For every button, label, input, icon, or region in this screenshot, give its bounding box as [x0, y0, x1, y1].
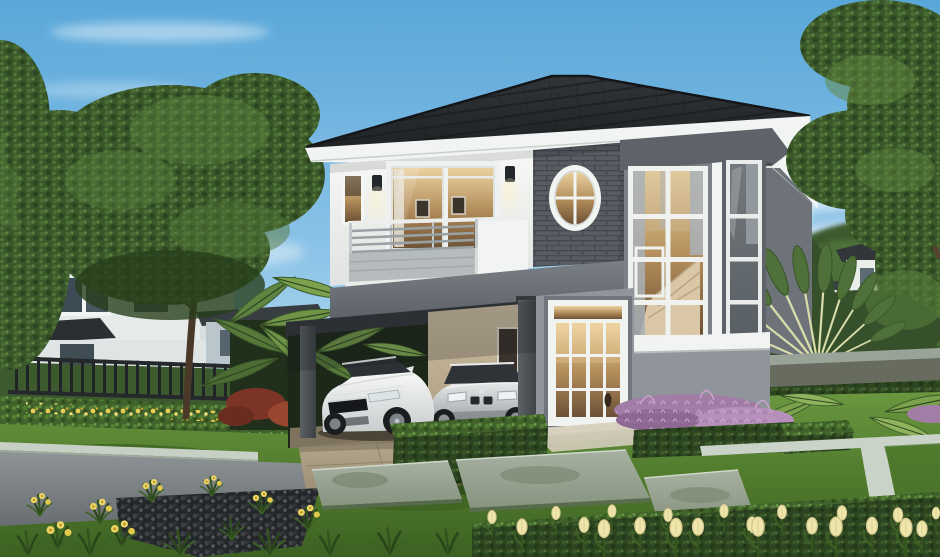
- oval-window: [549, 165, 601, 231]
- bay-window-tower: [618, 128, 790, 424]
- architectural-rendering: [0, 0, 940, 557]
- picture-frame: [452, 197, 465, 214]
- sedan-headlight-right: [498, 391, 517, 400]
- picture-frame: [416, 200, 429, 217]
- curtain: [690, 171, 703, 255]
- tower-window-front: [628, 166, 708, 340]
- main-house: [286, 76, 818, 452]
- curtain: [746, 164, 758, 244]
- interior-vase: [605, 393, 612, 407]
- sedan-greenhouse: [444, 364, 524, 384]
- stone-slab-2: [456, 450, 650, 512]
- stone-slab-1: [312, 461, 462, 510]
- sedan-headlight-left: [448, 392, 466, 402]
- bedroom-side-window: [342, 173, 364, 225]
- tower-window-angled: [726, 160, 762, 340]
